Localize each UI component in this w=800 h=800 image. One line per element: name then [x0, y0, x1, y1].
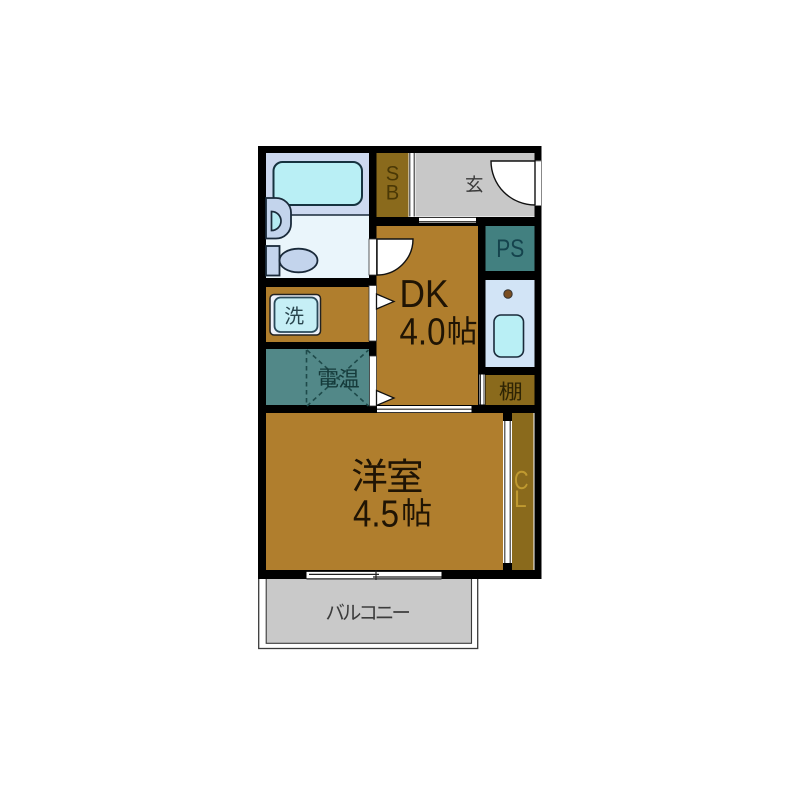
svg-text:4.5: 4.5 — [353, 493, 399, 535]
svg-text:PS: PS — [496, 235, 524, 263]
svg-text:L: L — [514, 486, 527, 513]
svg-text:B: B — [386, 180, 400, 204]
svg-text:4.0: 4.0 — [400, 311, 446, 353]
svg-text:DK: DK — [400, 273, 449, 316]
